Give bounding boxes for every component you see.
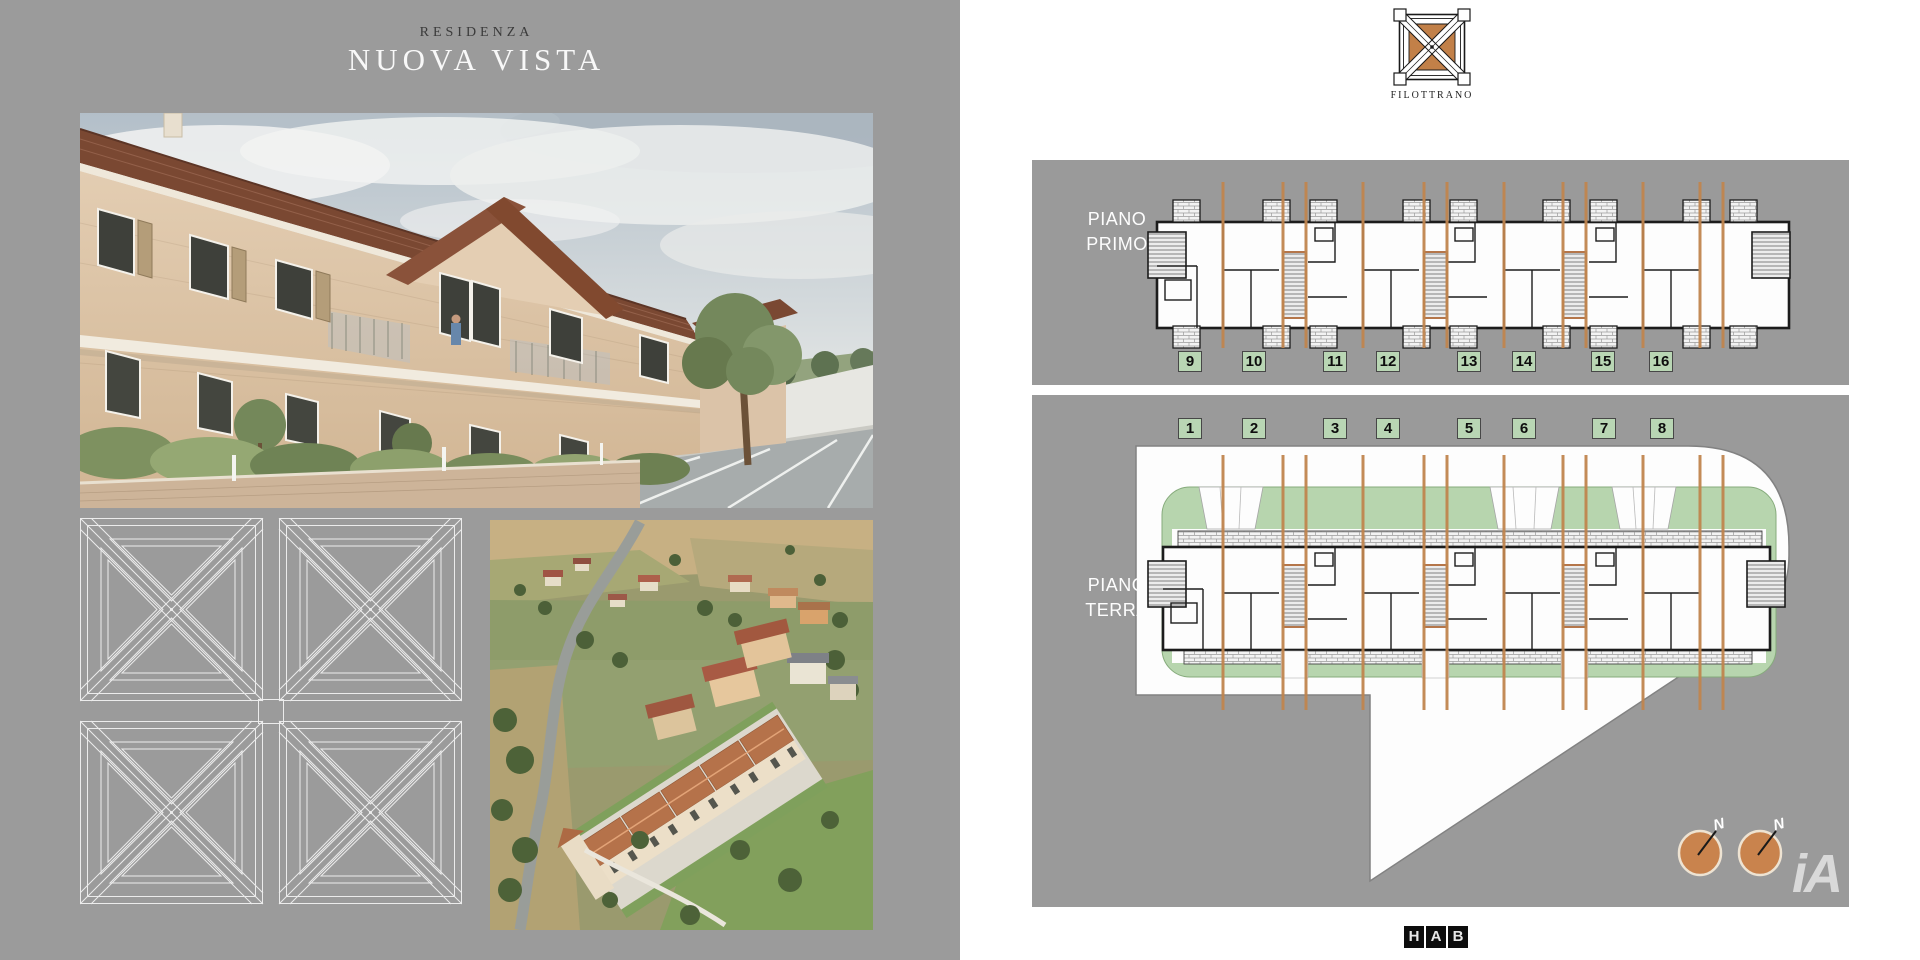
brand-letter: B (1448, 926, 1468, 948)
balconies-top (1173, 200, 1757, 222)
chimney (164, 113, 182, 137)
unit-badge: 15 (1591, 351, 1615, 372)
floorplan-primo (1032, 160, 1849, 385)
north-compass-icon: N (1730, 813, 1796, 879)
brochure-page: RESIDENZA NUOVA VISTA (0, 0, 1920, 960)
terrace-bottom (1184, 650, 1752, 664)
floor-label-terra: PIANO TERRA (1060, 573, 1174, 623)
unit-badge: 4 (1376, 418, 1400, 439)
unit-badge: 10 (1242, 351, 1266, 372)
portal-watermark: iA (1792, 843, 1840, 905)
ceiling-pattern-art (80, 518, 462, 905)
unit-badge: 3 (1323, 418, 1347, 439)
unit-badge: 16 (1649, 351, 1673, 372)
exterior-render-image (80, 113, 873, 508)
floor-panel-primo: PIANO PRIMO 9 10 11 12 13 14 15 16 (1032, 160, 1849, 385)
builder-logo-label: FILOTTRANO (1384, 90, 1480, 101)
builder-logo-block: FILOTTRANO (1384, 8, 1480, 101)
unit-badge: 6 (1512, 418, 1536, 439)
floor-panel-terra: PIANO TERRA 1 2 3 4 5 6 7 8 N N iA (1032, 395, 1849, 907)
north-compass-icon: N (1670, 813, 1736, 879)
brand-letter: H (1404, 926, 1424, 948)
unit-badge: 14 (1512, 351, 1536, 372)
hab-brand-mark: H A B (1404, 926, 1468, 948)
balcony-person (451, 315, 461, 346)
unit-badge: 11 (1323, 351, 1347, 372)
unit-badge: 13 (1457, 351, 1481, 372)
unit-badge: 7 (1592, 418, 1616, 439)
floor-label-primo: PIANO PRIMO (1060, 207, 1174, 257)
unit-badge: 1 (1178, 418, 1202, 439)
left-panel: RESIDENZA NUOVA VISTA (0, 0, 960, 960)
aerial-render-image (490, 520, 873, 930)
builder-logo-icon (1393, 8, 1471, 86)
svg-text:N: N (1772, 815, 1788, 834)
unit-badge: 2 (1242, 418, 1266, 439)
project-title: NUOVA VISTA (80, 42, 873, 78)
ceiling-pattern-drawing (80, 518, 462, 905)
unit-badge: 9 (1178, 351, 1202, 372)
brand-letter: A (1426, 926, 1446, 948)
terrace-top (1178, 531, 1762, 547)
unit-badge: 12 (1376, 351, 1400, 372)
unit-badge: 8 (1650, 418, 1674, 439)
project-subtitle: RESIDENZA (80, 25, 873, 41)
unit-badge: 5 (1457, 418, 1481, 439)
svg-text:N: N (1712, 815, 1728, 834)
exterior-render-art (80, 113, 873, 508)
aerial-render-art (490, 520, 873, 930)
